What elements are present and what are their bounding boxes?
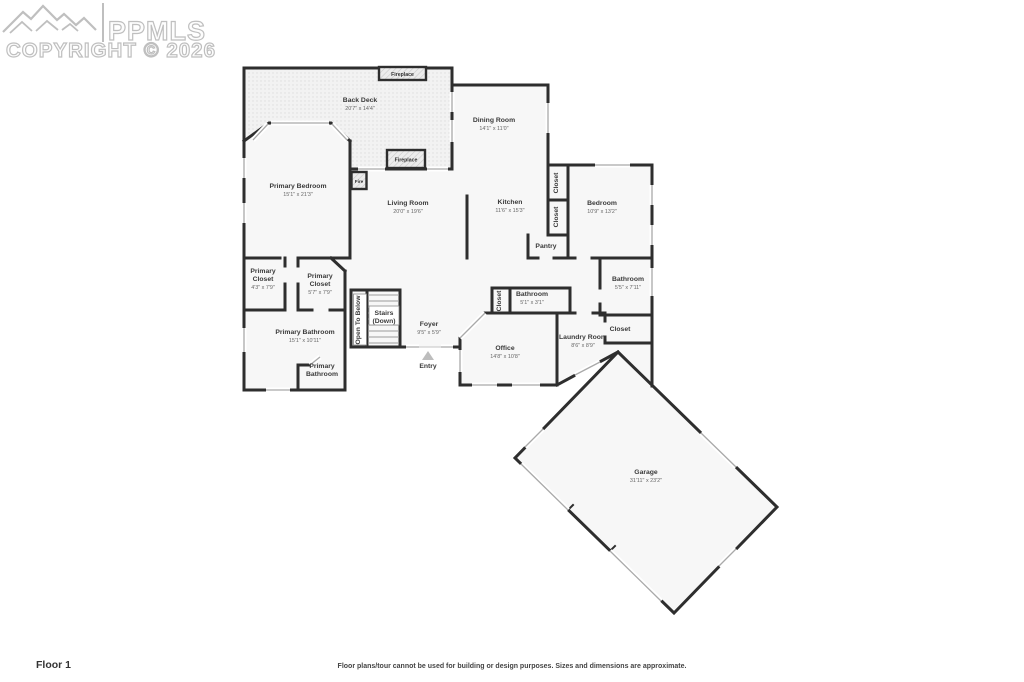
room-label-primary-closet-right: PrimaryCloset5'7" x 7'9" [307,273,333,296]
room-label-entry: Entry [419,363,437,370]
room-label-kitchen-closet-upper: Closet [553,172,560,194]
fireplace-deck-label: Fireplace [391,72,414,78]
room-label-primary-bathroom-wc: PrimaryBathroom [306,363,338,378]
mountain-logo-ridges [10,21,78,33]
room-label-stairs: Stairs(Down) [372,310,395,325]
watermark: PPMLS COPYRIGHT © 2026 [3,3,216,62]
mountain-logo-icon [3,6,96,32]
entry-arrow-icon [422,351,434,360]
watermark-copyright: COPYRIGHT © 2026 [6,39,216,62]
floor-plan: PPMLS COPYRIGHT © 2026 [0,0,1024,682]
room-label-closet-right: Closet [610,326,632,333]
disclaimer-text: Floor plans/tour cannot be used for buil… [338,663,687,670]
room-label-pantry: Pantry [535,243,556,250]
floor-plan-page: PPMLS COPYRIGHT © 2026 [0,0,1024,682]
primary-bedroom-fireplace-label: Fire [355,179,364,184]
fireplace-living-label: Fireplace [395,158,418,164]
floor-label: Floor 1 [36,659,71,671]
footer: Floor 1 Floor plans/tour cannot be used … [36,659,686,671]
room-label-open-to-below: Open To Below [355,295,362,345]
room-label-kitchen-closet-lower: Closet [553,206,560,228]
room-fills [244,68,777,613]
room-label-hall-closet: Closet [496,290,503,312]
room-label-primary-closet-left: PrimaryCloset4'3" x 7'9" [250,268,276,291]
